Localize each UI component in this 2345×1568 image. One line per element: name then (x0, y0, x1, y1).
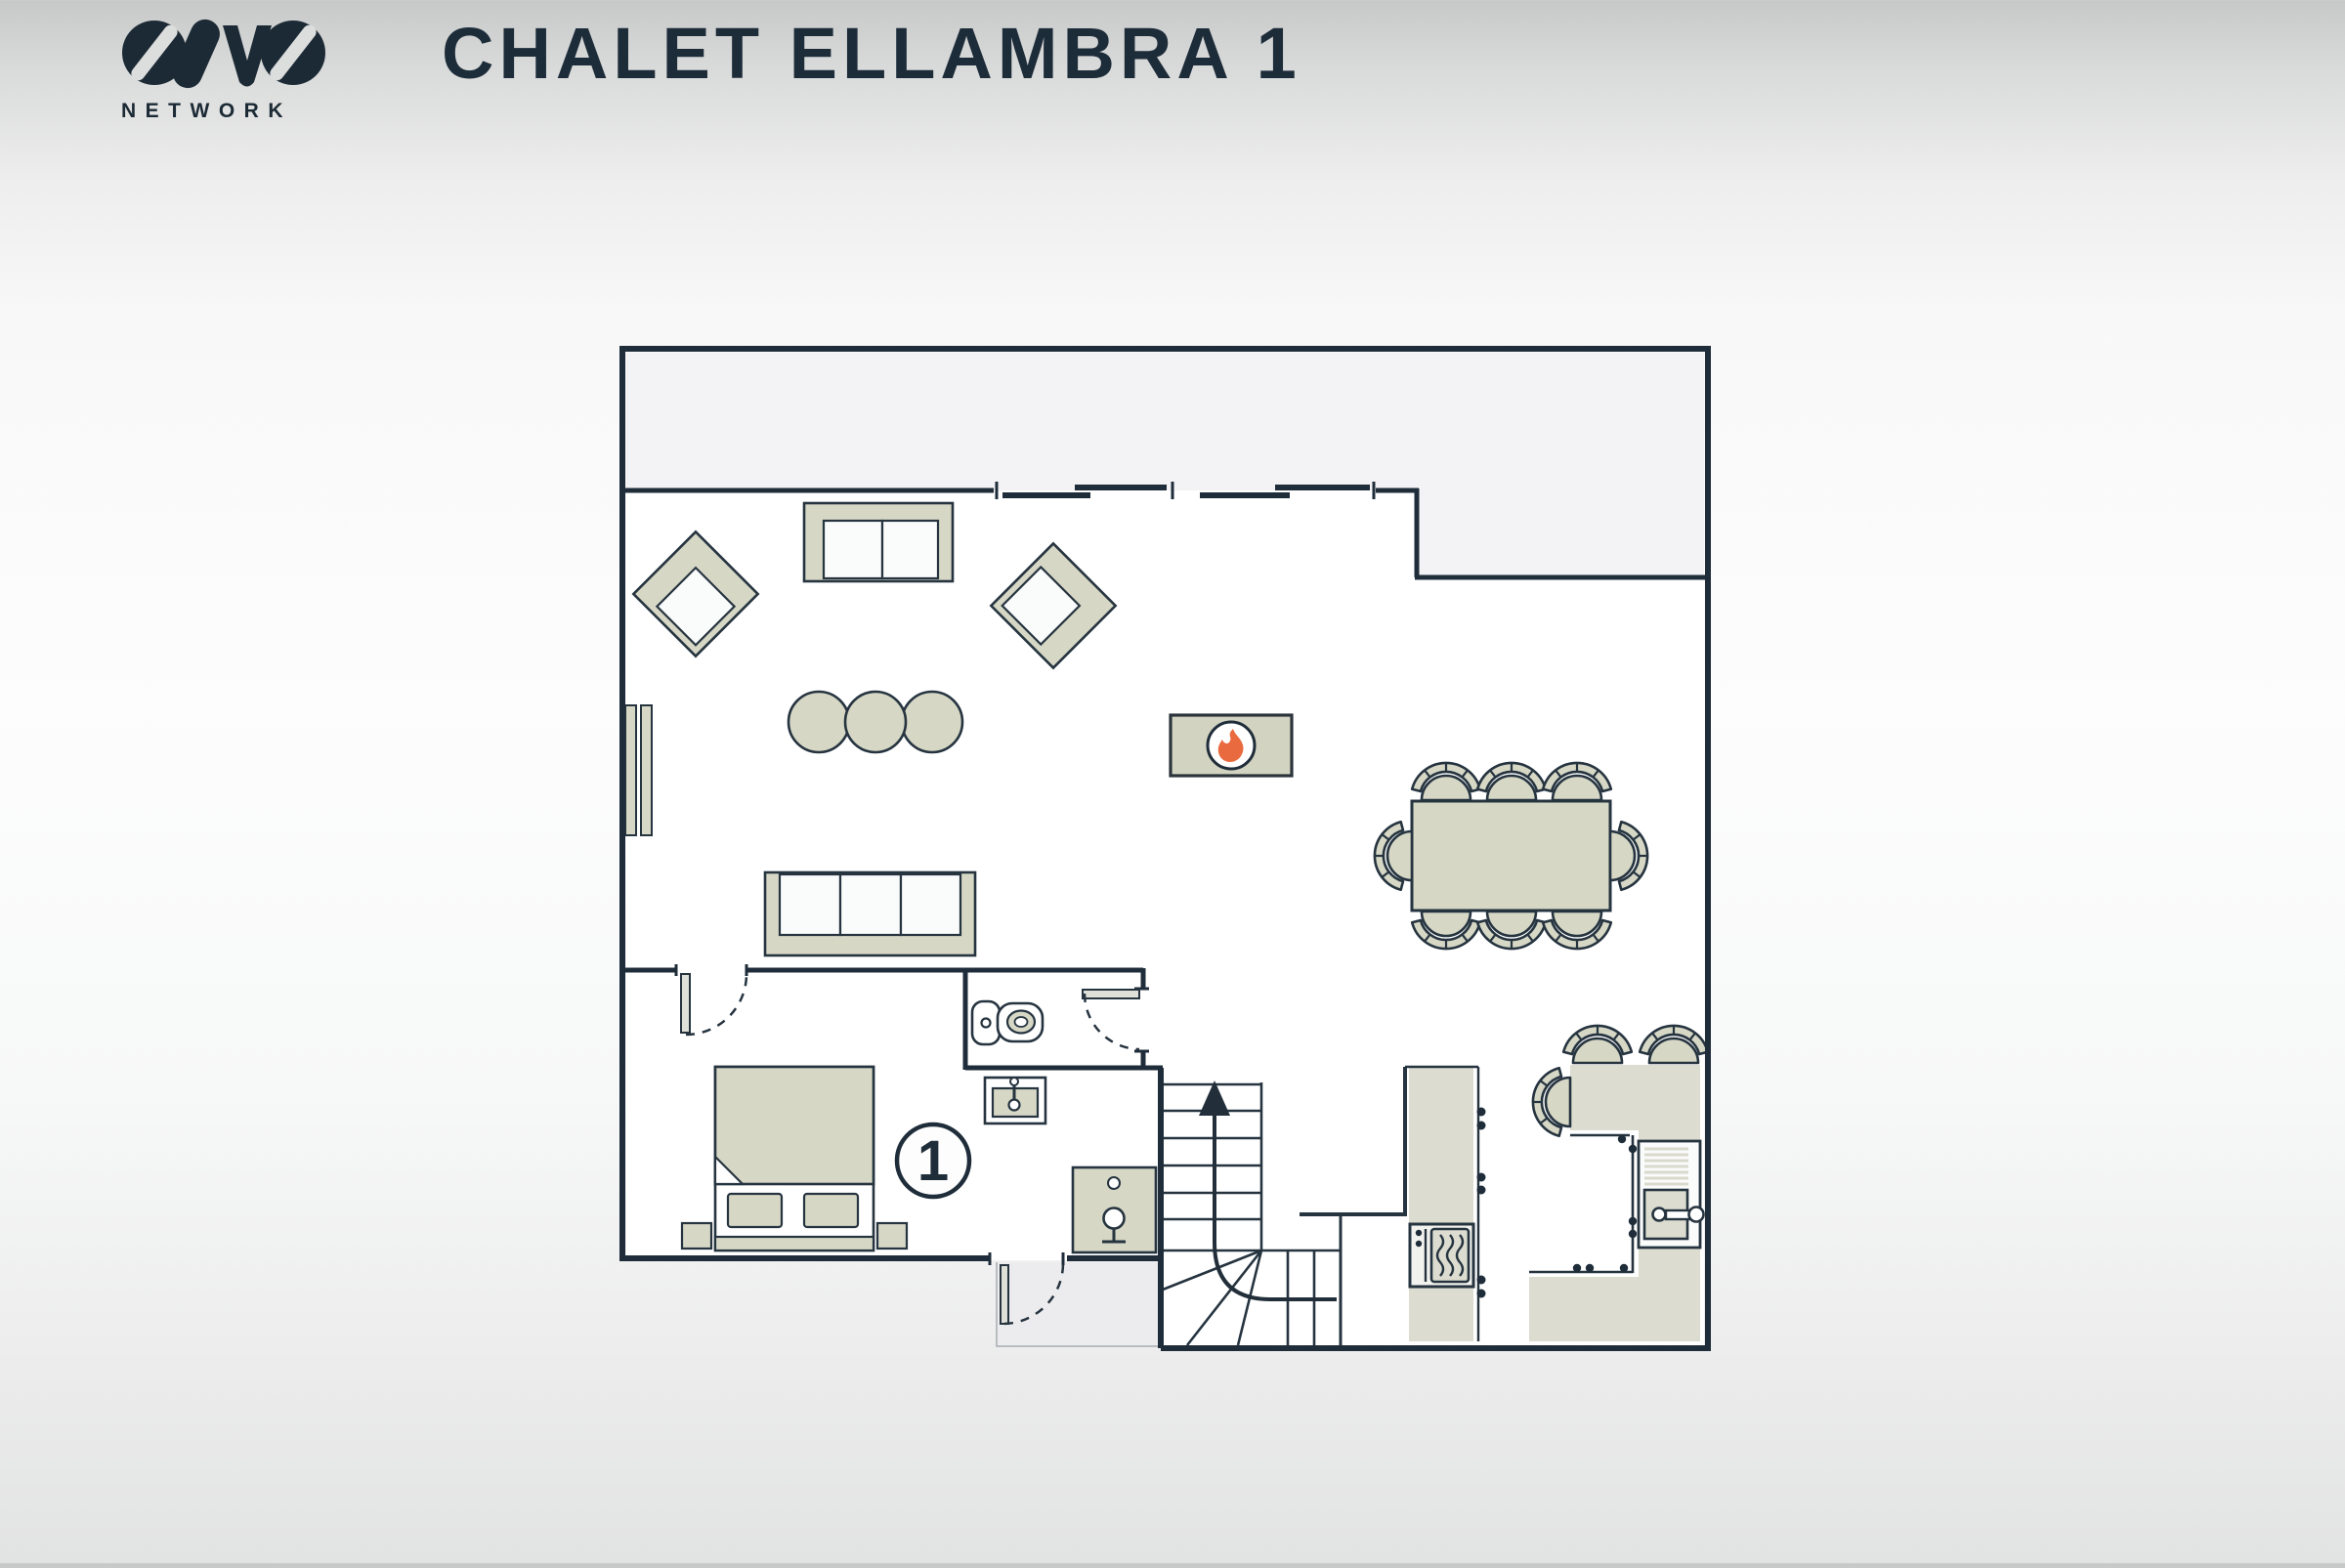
oven-icon (1410, 1224, 1473, 1287)
nightstand (877, 1223, 907, 1249)
entry-porch (997, 1262, 1161, 1346)
nightstand (682, 1223, 711, 1249)
logo-network-label: NETWORK (121, 100, 321, 123)
coffee-tables (789, 692, 962, 752)
vanity-sink-icon (985, 1078, 1045, 1123)
kitchen-sink-icon (1639, 1141, 1704, 1248)
toilet-icon (972, 1001, 1043, 1044)
ovo-network-logo: NETWORK (121, 14, 326, 131)
fireplace (1171, 715, 1292, 776)
kitchen-counter-run (1409, 1067, 1473, 1341)
ovo-logo-mark (121, 14, 326, 98)
shower-icon (1073, 1167, 1156, 1252)
sofa-top (804, 503, 953, 581)
dining-area (1375, 763, 1647, 949)
page-title: CHALET ELLAMBRA 1 (442, 12, 1301, 95)
sofa-bottom (765, 872, 975, 955)
header: NETWORK CHALET ELLAMBRA 1 (0, 0, 2345, 166)
unit-badge-number: 1 (917, 1129, 949, 1193)
dining-table (1412, 801, 1610, 911)
floor-plan-page: NETWORK CHALET ELLAMBRA 1 (0, 0, 2345, 1563)
floor-plan-drawing: 1 (0, 0, 2345, 1563)
double-bed (715, 1067, 874, 1250)
unit-badge: 1 (897, 1124, 969, 1197)
